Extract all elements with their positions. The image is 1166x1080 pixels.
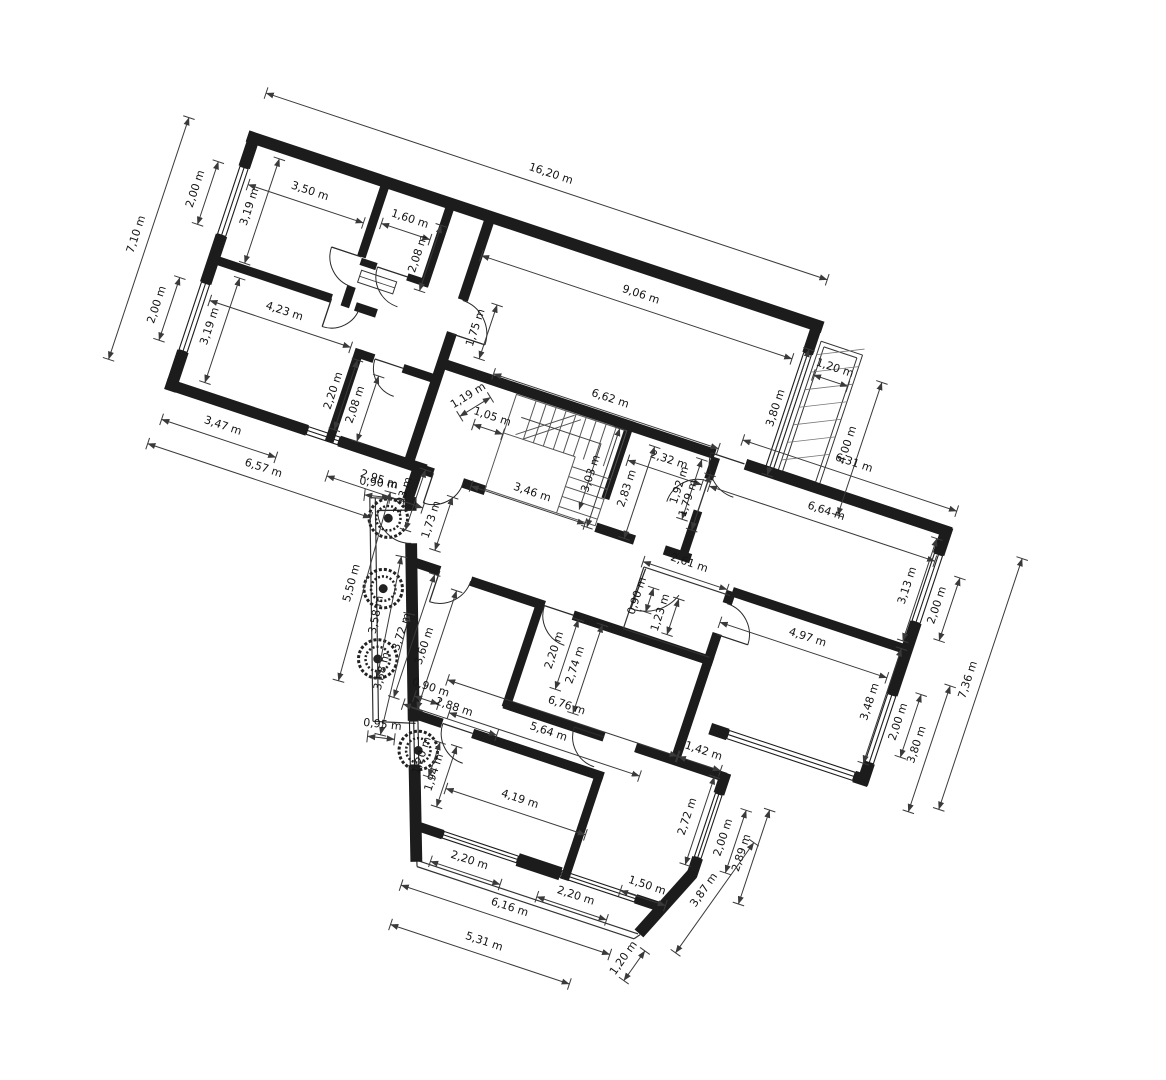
canvas-background bbox=[0, 0, 1166, 1080]
floor-plan-drawing: 7,10 m2,00 m3,19 m2,00 m3,19 m3,50 m1,60… bbox=[0, 0, 1166, 1080]
floor-plan-page: 7,10 m2,00 m3,19 m2,00 m3,19 m3,50 m1,60… bbox=[0, 0, 1166, 1080]
